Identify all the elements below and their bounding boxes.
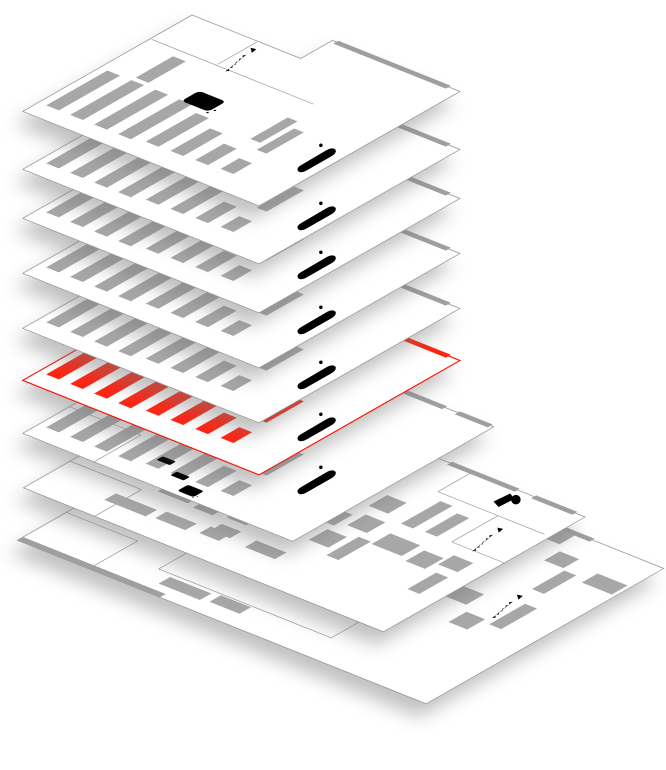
floor-stack-scene [0,0,666,770]
